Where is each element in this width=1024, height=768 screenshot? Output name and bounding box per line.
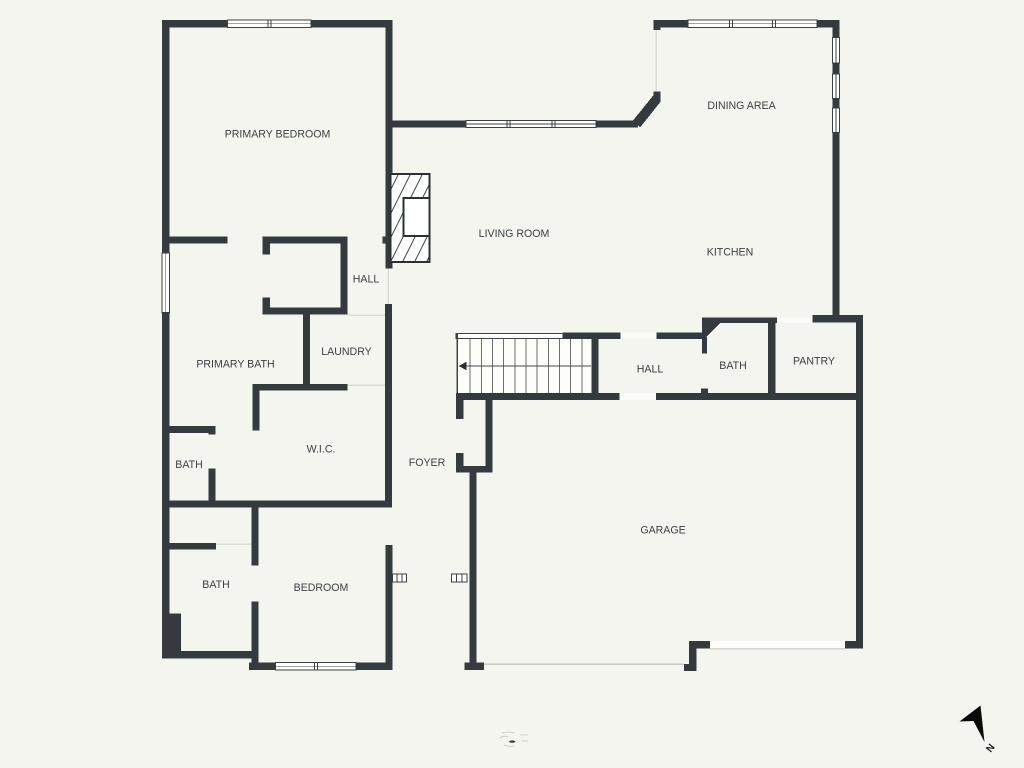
svg-text:GARAGE: GARAGE bbox=[640, 525, 685, 537]
svg-text:BATH: BATH bbox=[719, 360, 746, 372]
svg-text:KITCHEN: KITCHEN bbox=[707, 247, 754, 259]
svg-text:LIVING ROOM: LIVING ROOM bbox=[479, 228, 550, 240]
svg-text:DINING AREA: DINING AREA bbox=[707, 100, 776, 112]
svg-text:BEDROOM: BEDROOM bbox=[294, 582, 349, 594]
svg-text:HALL: HALL bbox=[637, 364, 664, 376]
svg-text:BATH: BATH bbox=[175, 459, 202, 471]
svg-text:PRIMARY BATH: PRIMARY BATH bbox=[196, 359, 274, 371]
svg-text:LAUNDRY: LAUNDRY bbox=[321, 346, 371, 358]
svg-text:W.I.C.: W.I.C. bbox=[307, 444, 336, 456]
svg-text:PANTRY: PANTRY bbox=[793, 356, 835, 368]
svg-text:BATH: BATH bbox=[202, 579, 229, 591]
svg-text:FOYER: FOYER bbox=[409, 457, 446, 469]
svg-text:PRIMARY BEDROOM: PRIMARY BEDROOM bbox=[225, 129, 331, 141]
svg-text:HALL: HALL bbox=[353, 274, 380, 286]
